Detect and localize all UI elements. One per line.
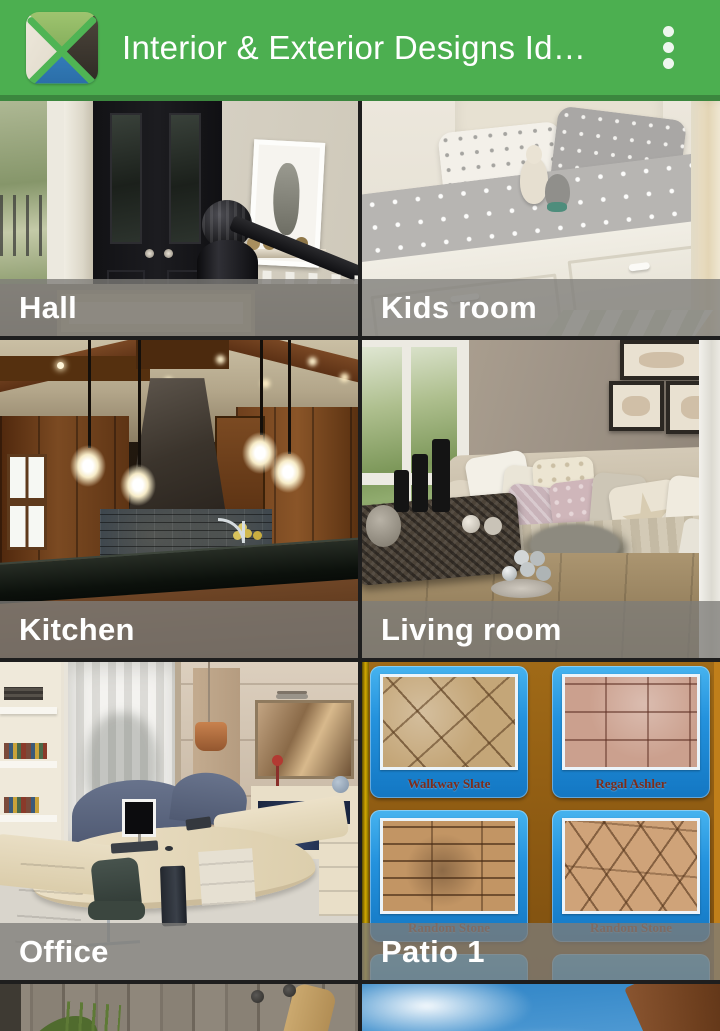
red-vase xyxy=(276,761,279,790)
pendant-stem xyxy=(288,340,291,454)
app-screen: Interior & Exterior Designs Id… xyxy=(0,0,720,1031)
door-glass-pane xyxy=(169,113,201,244)
tile-kids-room[interactable]: Kids room xyxy=(362,101,720,336)
dark-plank xyxy=(0,984,21,1031)
tile-living-room[interactable]: Living room xyxy=(362,340,720,658)
pendant-light xyxy=(70,445,106,487)
wall-mirror xyxy=(255,700,354,779)
plate xyxy=(491,579,552,598)
overflow-dot xyxy=(663,26,674,37)
copper-pendant-light xyxy=(195,722,227,751)
pendant-stem xyxy=(138,340,141,467)
category-grid: Hall Kids room xyxy=(0,101,720,1031)
tile-label-band: Patio 1 xyxy=(362,923,720,980)
sky-palms-photo xyxy=(362,984,720,1031)
skateboard-wheel xyxy=(283,984,296,997)
office-chair-seat xyxy=(88,901,145,920)
tile-label-band: Hall xyxy=(0,279,358,336)
stone-pattern-card: Walkway Slate xyxy=(370,666,528,798)
overflow-dot xyxy=(663,42,674,53)
tile-label-band: Office xyxy=(0,923,358,980)
tile-patio-1[interactable]: Walkway Slate Regal Ashler Random Stone … xyxy=(362,662,720,980)
walkway-slate-swatch xyxy=(380,674,518,770)
wall-shelves xyxy=(0,707,57,714)
wood-beam xyxy=(136,340,229,369)
pc-tower xyxy=(160,865,187,926)
tile-label: Office xyxy=(0,934,109,970)
books xyxy=(4,743,47,759)
black-candle xyxy=(412,454,428,511)
computer-monitor xyxy=(122,799,157,837)
wood-beam xyxy=(0,356,150,381)
stacked-stone-swatch xyxy=(380,818,518,914)
tile-office[interactable]: Office xyxy=(0,662,358,980)
fence-patio-photo xyxy=(0,984,358,1031)
overflow-menu-icon[interactable] xyxy=(638,0,698,95)
glassware xyxy=(462,515,480,533)
black-candle xyxy=(432,439,450,512)
swatch-label: Walkway Slate xyxy=(370,776,528,792)
kitchen-window xyxy=(7,454,46,549)
pendant-stem xyxy=(260,340,263,435)
pendant-light xyxy=(120,464,156,506)
pendant-light xyxy=(270,451,306,493)
door-glass-pane xyxy=(110,113,142,244)
drawer-pedestal xyxy=(199,848,256,906)
regal-ashler-swatch xyxy=(562,674,700,770)
pendant-stem xyxy=(88,340,91,448)
family-photo-frame xyxy=(620,340,703,380)
pendant-stem xyxy=(208,662,210,726)
swatch-label: Regal Ashler xyxy=(552,776,710,792)
tile-kitchen[interactable]: Kitchen xyxy=(0,340,358,658)
tile-hall[interactable]: Hall xyxy=(0,101,358,336)
app-bar: Interior & Exterior Designs Id… xyxy=(0,0,720,95)
books xyxy=(4,797,40,813)
stone-pattern-card: Regal Ashler xyxy=(552,666,710,798)
hall-iron-railing xyxy=(0,195,47,256)
tile-label: Living room xyxy=(362,612,562,648)
tile-partial-bottom-right[interactable] xyxy=(362,984,720,1031)
door-knob xyxy=(164,249,173,258)
tile-label-band: Living room xyxy=(362,601,720,658)
door-knob xyxy=(145,249,154,258)
tile-label: Hall xyxy=(0,290,77,326)
book-stack xyxy=(4,687,43,700)
tile-label: Kitchen xyxy=(0,612,135,648)
skateboard-wheel xyxy=(251,990,264,1003)
tile-partial-bottom-left[interactable] xyxy=(0,984,358,1031)
tile-label-band: Kitchen xyxy=(0,601,358,658)
random-stone-swatch xyxy=(562,818,700,914)
black-candle xyxy=(394,470,408,511)
tile-label-band: Kids room xyxy=(362,279,720,336)
app-logo-icon xyxy=(26,12,98,84)
cloud xyxy=(362,984,534,1031)
overflow-dot xyxy=(663,58,674,69)
glass-jar xyxy=(366,505,402,546)
tile-label: Patio 1 xyxy=(362,934,485,970)
app-title: Interior & Exterior Designs Id… xyxy=(122,29,638,67)
silver-baubles xyxy=(502,566,517,581)
plush-toy-bunny xyxy=(520,157,549,204)
wall-light xyxy=(276,694,308,699)
family-photo-frame xyxy=(609,381,664,430)
tile-label: Kids room xyxy=(362,290,537,326)
plush-toy-bear xyxy=(545,174,570,209)
